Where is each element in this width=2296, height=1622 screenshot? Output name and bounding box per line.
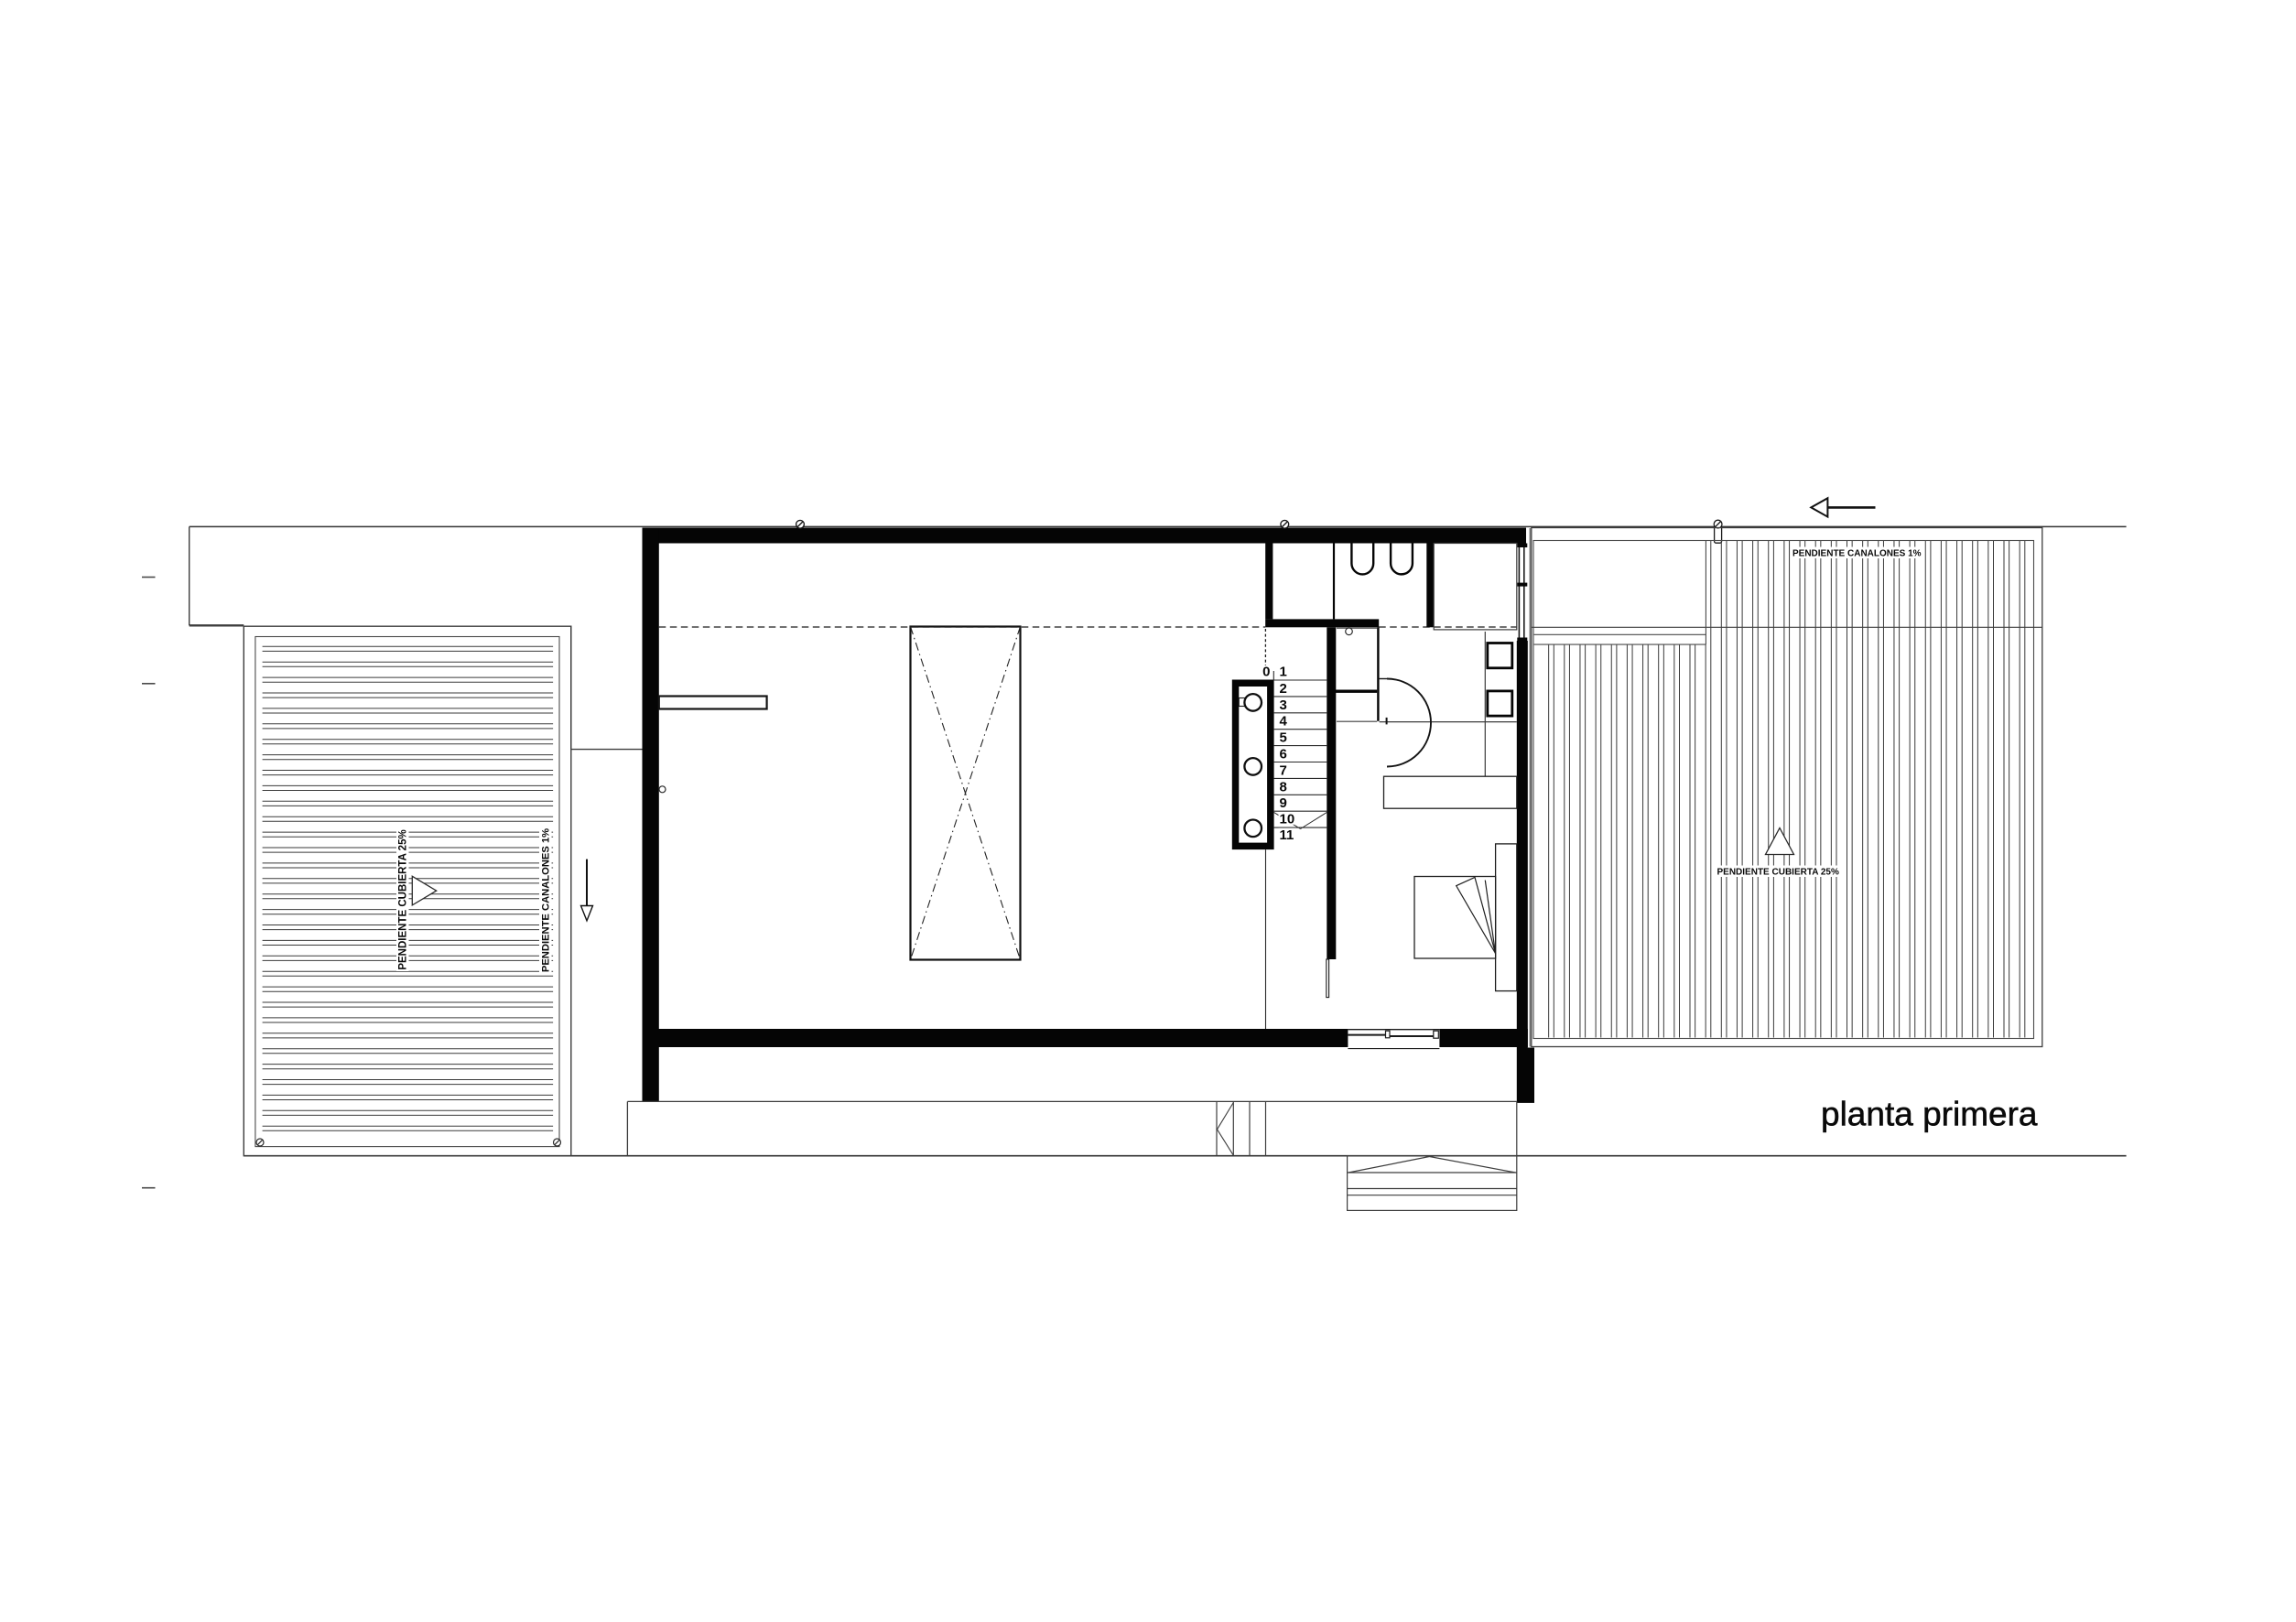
svg-text:planta primera: planta primera xyxy=(1821,1096,2038,1133)
svg-text:1: 1 xyxy=(1280,665,1287,680)
svg-text:6: 6 xyxy=(1280,747,1287,762)
svg-text:10: 10 xyxy=(1280,811,1295,827)
svg-text:0: 0 xyxy=(1262,665,1270,680)
svg-text:2: 2 xyxy=(1280,681,1287,697)
svg-text:3: 3 xyxy=(1280,697,1287,713)
svg-text:9: 9 xyxy=(1280,795,1287,811)
svg-text:11: 11 xyxy=(1280,827,1294,843)
svg-text:7: 7 xyxy=(1280,762,1287,778)
svg-text:8: 8 xyxy=(1280,779,1287,795)
svg-text:PENDIENTE CUBIERTA 25%: PENDIENTE CUBIERTA 25% xyxy=(398,829,409,969)
svg-text:PENDIENTE CANALONES 1%: PENDIENTE CANALONES 1% xyxy=(1792,548,1922,558)
svg-text:PENDIENTE CUBIERTA 25%: PENDIENTE CUBIERTA 25% xyxy=(1717,868,1839,878)
svg-text:5: 5 xyxy=(1280,730,1287,746)
svg-text:4: 4 xyxy=(1280,714,1288,730)
svg-text:PENDIENTE CANALONES 1%: PENDIENTE CANALONES 1% xyxy=(541,828,552,972)
